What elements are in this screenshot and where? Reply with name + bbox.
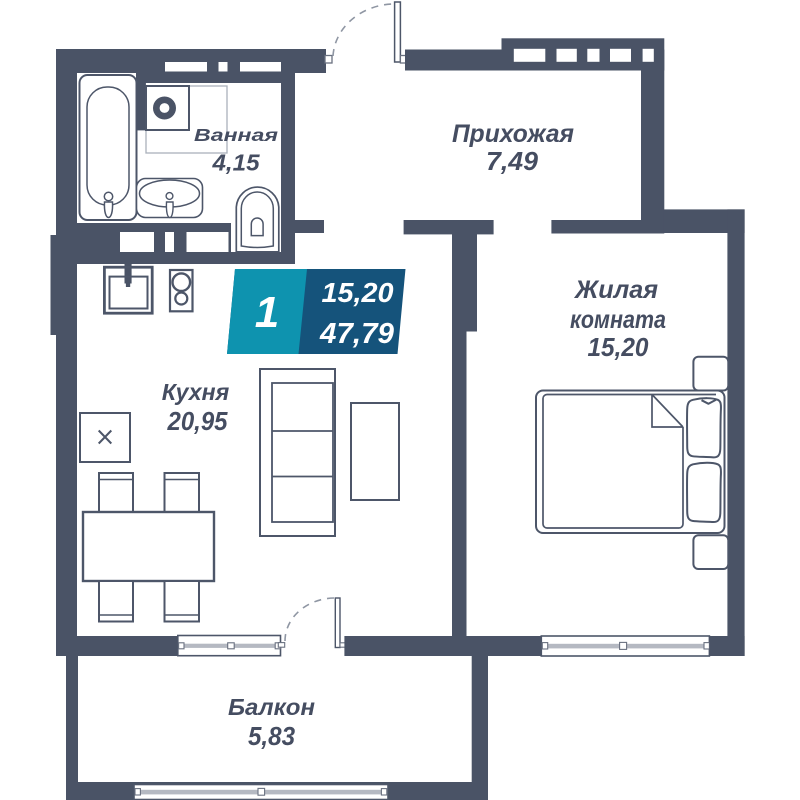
svg-text:Кухня: Кухня bbox=[162, 379, 230, 405]
svg-text:20,95: 20,95 bbox=[167, 406, 228, 436]
svg-text:комната: комната bbox=[570, 306, 666, 334]
svg-text:4,15: 4,15 bbox=[211, 150, 260, 176]
svg-text:15,20: 15,20 bbox=[322, 277, 394, 308]
svg-text:Балкон: Балкон bbox=[228, 694, 315, 720]
svg-text:15,20: 15,20 bbox=[588, 332, 649, 362]
svg-text:5,83: 5,83 bbox=[248, 721, 295, 751]
svg-text:Жилая: Жилая bbox=[573, 276, 658, 304]
svg-text:1: 1 bbox=[255, 288, 279, 337]
svg-text:7,49: 7,49 bbox=[486, 146, 539, 176]
svg-text:Ванная: Ванная bbox=[194, 125, 278, 145]
svg-text:Прихожая: Прихожая bbox=[452, 120, 574, 148]
svg-text:47,79: 47,79 bbox=[319, 318, 394, 350]
